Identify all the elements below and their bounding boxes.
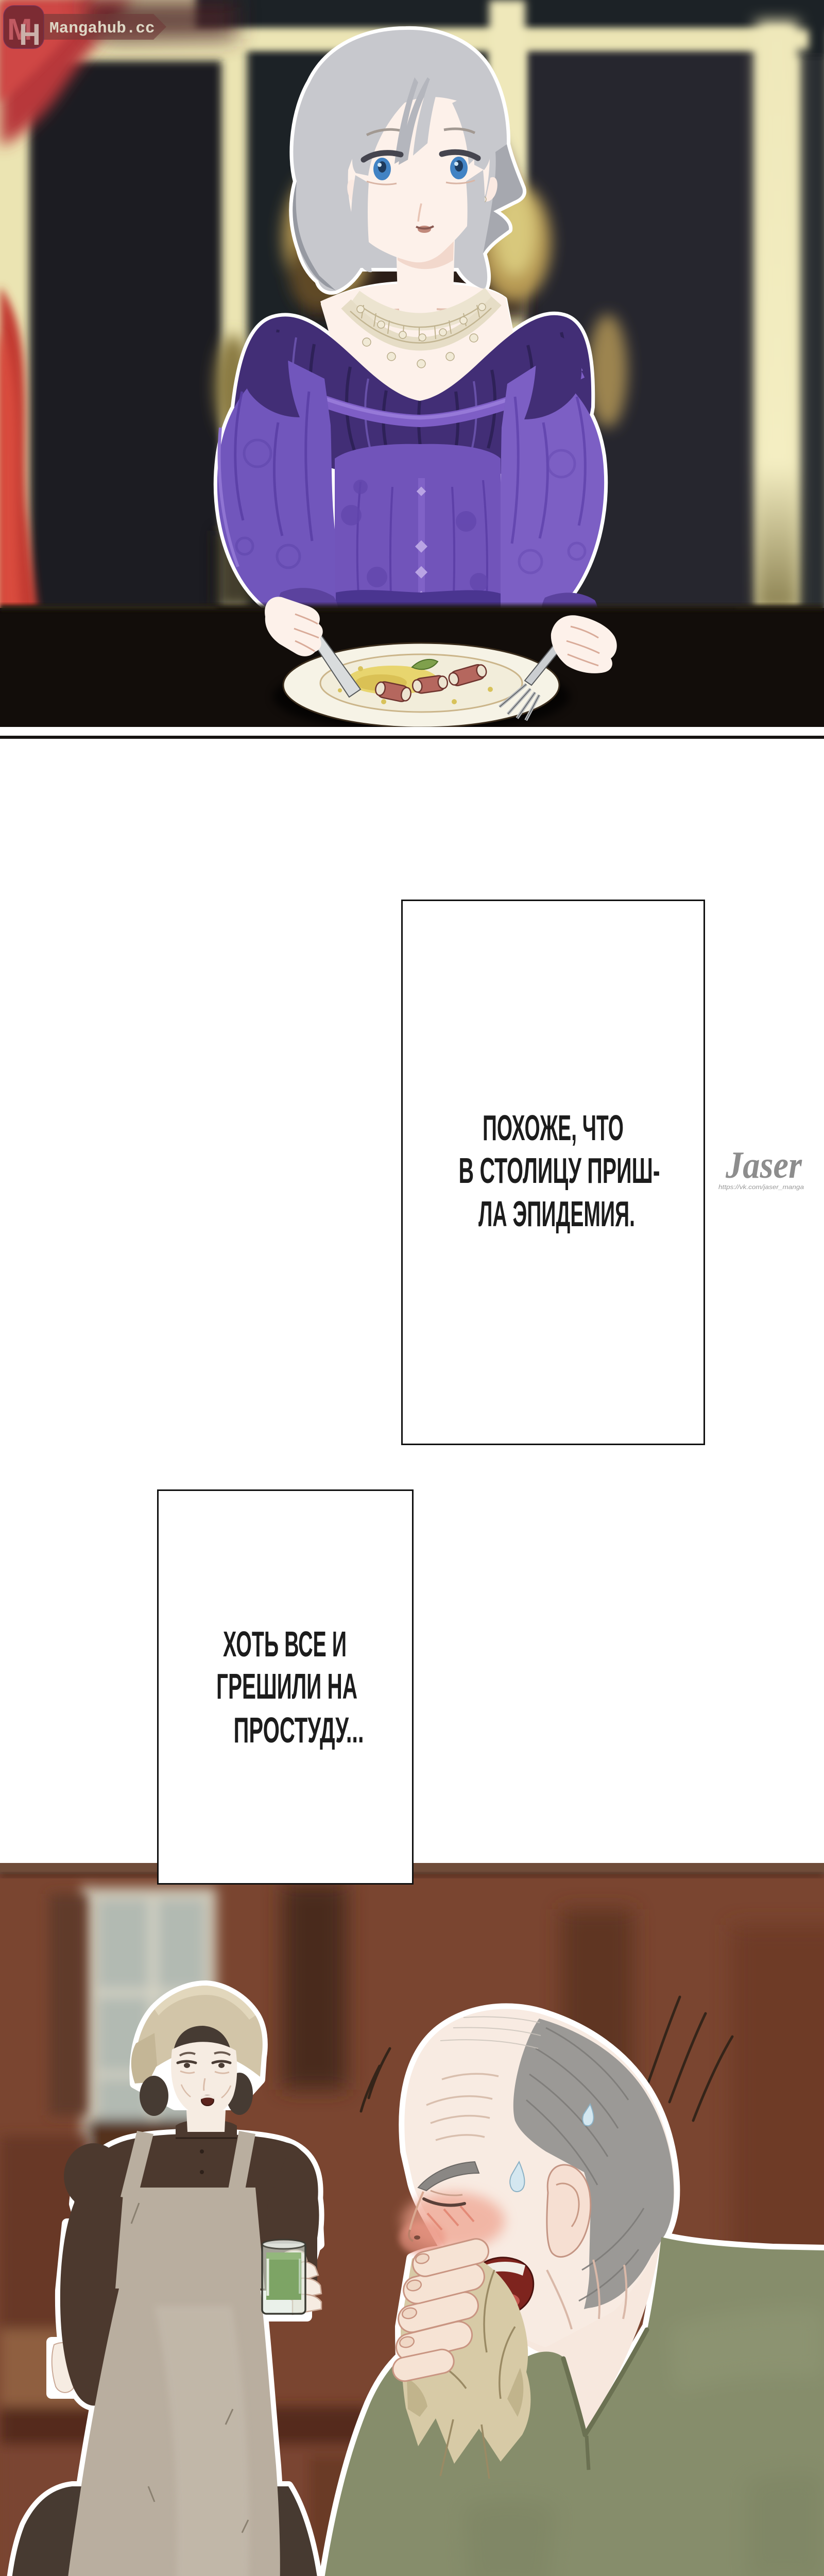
svg-text:Jaser: Jaser (725, 1144, 802, 1187)
svg-text:В СТОЛИЦУ ПРИШ-: В СТОЛИЦУ ПРИШ- (459, 1150, 660, 1191)
svg-text:ХОТЬ ВСЕ И: ХОТЬ ВСЕ И (223, 1624, 347, 1664)
svg-text:ГРЕШИЛИ НА: ГРЕШИЛИ НА (216, 1666, 357, 1706)
svg-text:H: H (19, 18, 41, 52)
svg-text:ЛА ЭПИДЕМИЯ.: ЛА ЭПИДЕМИЯ. (478, 1194, 635, 1234)
svg-text:Mangahub.cc: Mangahub.cc (49, 20, 155, 38)
svg-text:httрs://vk.com/jaser_manga: httрs://vk.com/jaser_manga (718, 1183, 804, 1191)
svg-text:ПОХОЖЕ, ЧТО: ПОХОЖЕ, ЧТО (483, 1108, 624, 1148)
svg-text:ПРОСТУДУ...: ПРОСТУДУ... (234, 1710, 364, 1750)
